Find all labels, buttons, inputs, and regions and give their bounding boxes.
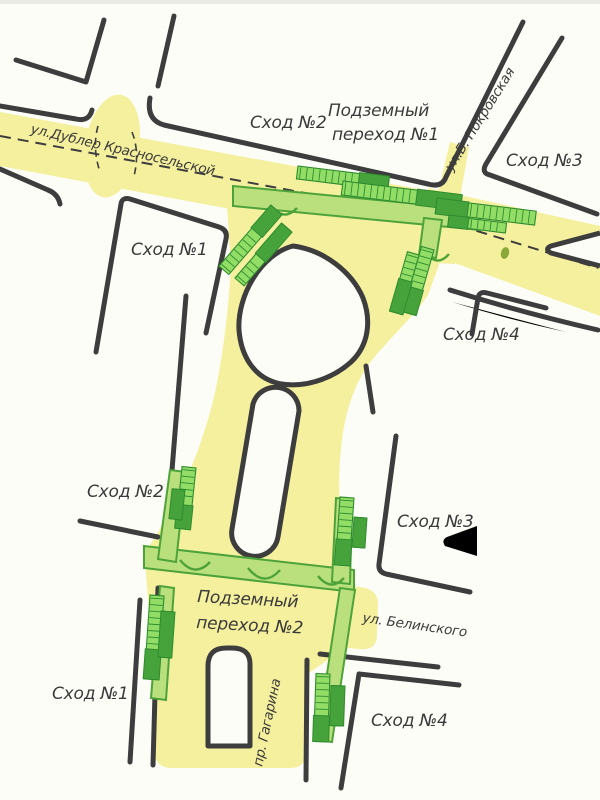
underpass-1-exit-2-label: Сход №2 xyxy=(250,113,327,133)
underpass-1-exit-4-label: Сход №4 xyxy=(443,325,520,345)
underpass-1-title-line2: переход №1 xyxy=(332,125,439,145)
underpass-1-exit-1-label: Сход №1 xyxy=(131,240,208,260)
underpass-1-title-line1: Подземный xyxy=(328,101,429,121)
underpass-2-exit-3-label: Сход №3 xyxy=(397,512,474,532)
curb-gagarina-east-lower xyxy=(306,660,307,780)
underpass-2-exit-4-label: Сход №4 xyxy=(371,711,448,731)
stair-up2-exit4-block xyxy=(330,686,345,726)
underpass-2-exit-1-label: Сход №1 xyxy=(52,684,129,704)
stair-up2-exit4-bar xyxy=(313,673,331,742)
stair-up2-exit1-block xyxy=(158,611,175,658)
underpass-1-exit-3-label: Сход №3 xyxy=(506,151,583,171)
street-map-scan: ул.Дублер Красносельской ул.Б. Покровска… xyxy=(0,0,600,800)
scan-artifact-strip xyxy=(0,0,600,4)
stair-up2-exit3-block xyxy=(352,517,367,548)
island-median-lower xyxy=(208,648,250,746)
underpass-2-exit-2-label: Сход №2 xyxy=(87,482,164,502)
stair-up2-exit2-block xyxy=(169,489,185,520)
